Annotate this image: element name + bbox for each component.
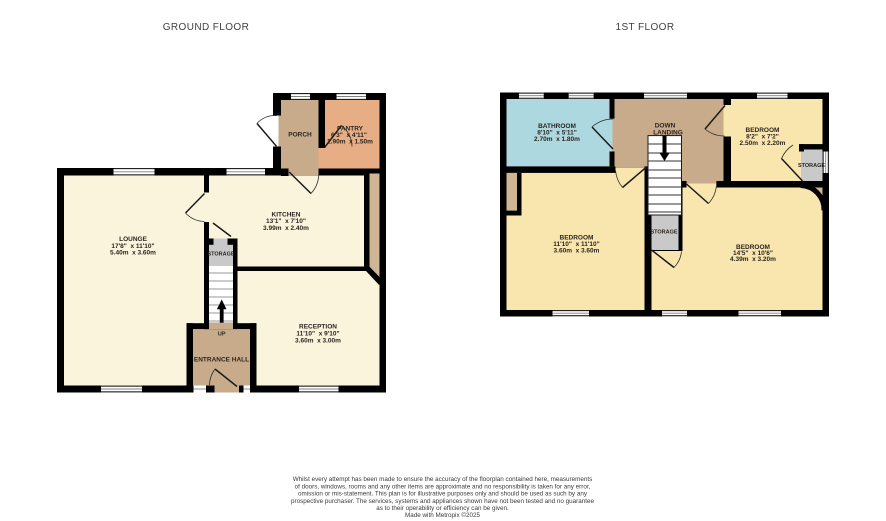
svg-text:STORAGE: STORAGE xyxy=(650,229,677,235)
svg-text:DOWN: DOWN xyxy=(655,122,676,129)
svg-text:omission or mis-statement. Thi: omission or mis-statement. This plan is … xyxy=(298,491,588,498)
svg-text:3.60m x 3.00m: 3.60m x 3.00m xyxy=(295,337,341,344)
svg-text:prospective purchaser. The ser: prospective purchaser. The services, sys… xyxy=(291,498,595,505)
svg-text:3.60m x 3.60m: 3.60m x 3.60m xyxy=(554,247,600,254)
svg-text:Whilst every attempt has been: Whilst every attempt has been made to en… xyxy=(293,476,593,483)
svg-text:LANDING: LANDING xyxy=(653,130,683,137)
svg-text:4.39m x 3.20m: 4.39m x 3.20m xyxy=(730,256,776,263)
svg-text:as to their operability or eff: as to their operability or efficiency ca… xyxy=(376,505,509,512)
svg-text:2.70m x 1.80m: 2.70m x 1.80m xyxy=(534,136,580,143)
svg-text:UP: UP xyxy=(218,332,226,338)
svg-text:1ST FLOOR: 1ST FLOOR xyxy=(616,22,675,33)
svg-text:1.90m x 1.50m: 1.90m x 1.50m xyxy=(327,139,373,146)
svg-text:STORAGE: STORAGE xyxy=(207,251,234,257)
svg-text:3.99m x 2.40m: 3.99m x 2.40m xyxy=(263,225,309,232)
svg-text:GROUND FLOOR: GROUND FLOOR xyxy=(163,22,249,33)
svg-text:of doors, windows, rooms and a: of doors, windows, rooms and any other i… xyxy=(295,483,591,490)
svg-text:Made with Metropix ©2025: Made with Metropix ©2025 xyxy=(405,511,480,519)
svg-text:2.50m x 2.20m: 2.50m x 2.20m xyxy=(740,140,786,147)
svg-text:PORCH: PORCH xyxy=(288,132,312,139)
svg-text:5.40m x 3.60m: 5.40m x 3.60m xyxy=(110,249,156,256)
svg-text:RECEPTION: RECEPTION xyxy=(299,324,337,331)
svg-text:ENTRANCE HALL: ENTRANCE HALL xyxy=(194,357,249,364)
svg-text:STORAGE: STORAGE xyxy=(798,163,825,169)
